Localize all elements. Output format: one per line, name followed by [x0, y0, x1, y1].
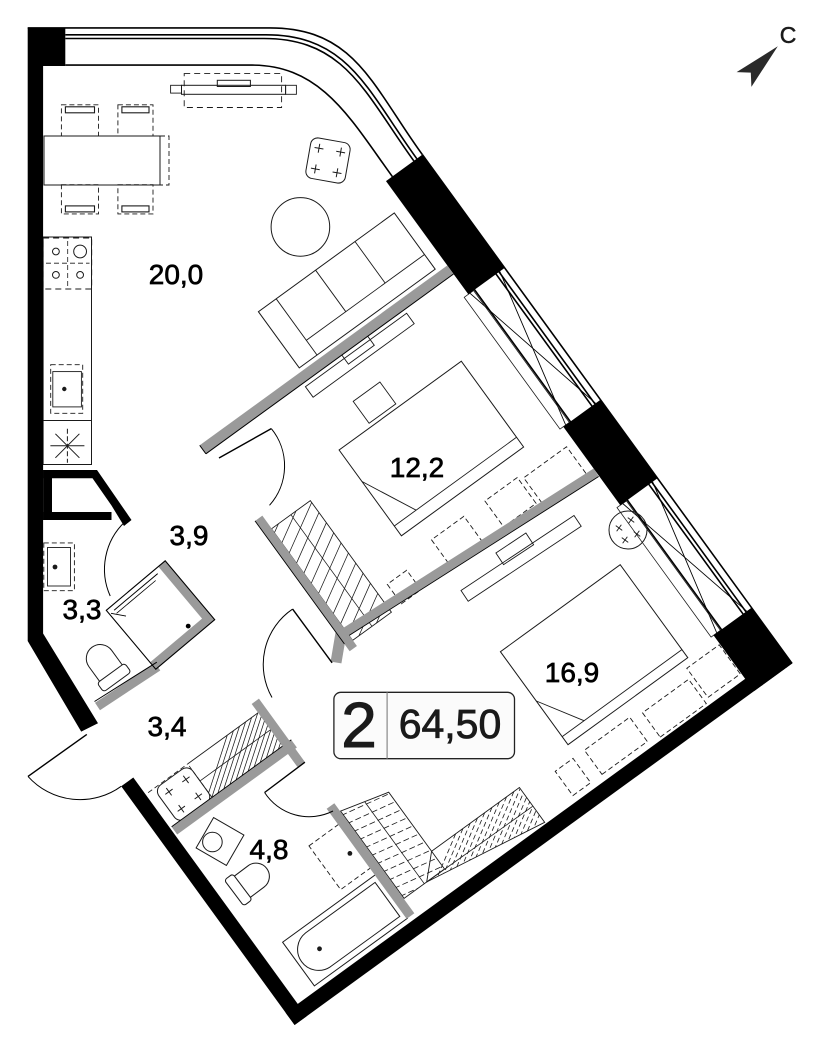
svg-text:3,4: 3,4 — [148, 711, 187, 742]
svg-text:20,0: 20,0 — [149, 259, 204, 290]
svg-text:С: С — [780, 22, 797, 48]
svg-text:3,9: 3,9 — [170, 520, 209, 551]
svg-text:12,2: 12,2 — [390, 452, 445, 483]
svg-text:2: 2 — [341, 689, 377, 761]
svg-text:64,50: 64,50 — [399, 701, 502, 747]
svg-text:4,8: 4,8 — [250, 834, 289, 865]
svg-text:16,9: 16,9 — [545, 657, 600, 688]
svg-text:3,3: 3,3 — [63, 594, 102, 625]
